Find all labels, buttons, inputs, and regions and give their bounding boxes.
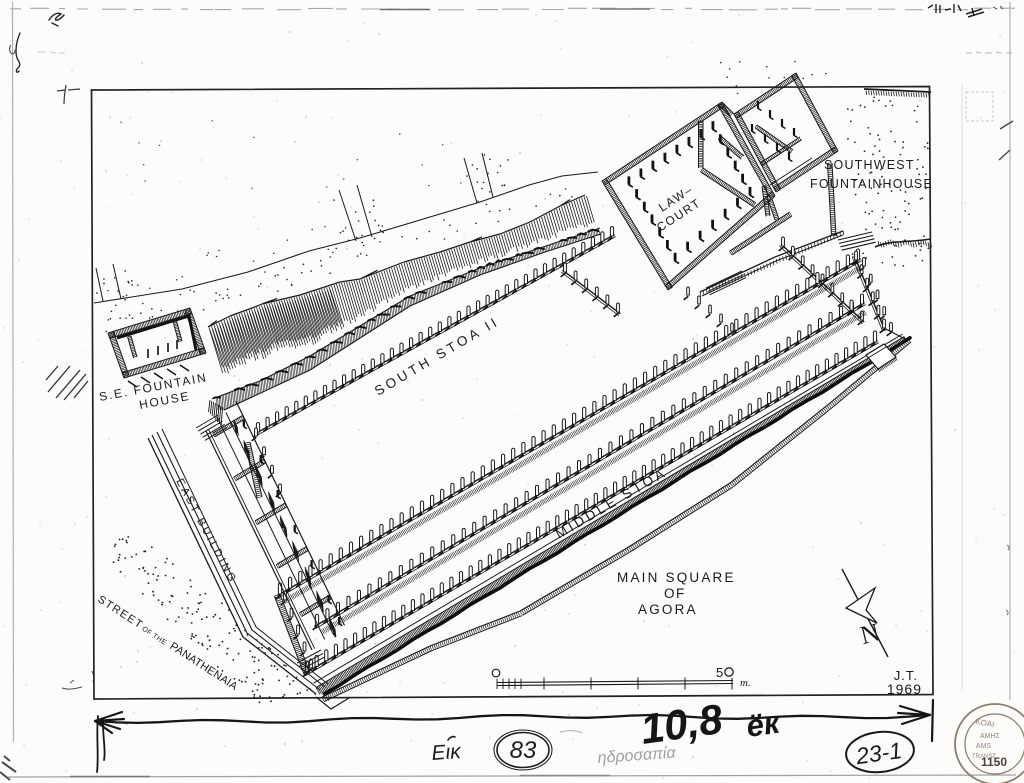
svg-text:MAIN SQUARE: MAIN SQUARE — [617, 570, 736, 585]
svg-text:AMS: AMS — [976, 743, 992, 750]
svg-text:SOUTHWEST: SOUTHWEST — [824, 158, 915, 172]
svg-text:1969: 1969 — [887, 681, 922, 697]
svg-text:1150: 1150 — [981, 755, 1007, 769]
svg-text:ΑΜΗΣ: ΑΜΗΣ — [980, 733, 1001, 740]
svg-text:5: 5 — [716, 665, 723, 680]
svg-text:OF: OF — [664, 586, 686, 601]
svg-text:m.: m. — [740, 677, 751, 689]
svg-text:AGORA: AGORA — [638, 602, 698, 617]
svg-text:83: 83 — [510, 737, 537, 764]
svg-text:Eικ: Eικ — [431, 740, 463, 765]
svg-text:ёк: ёк — [744, 705, 783, 744]
